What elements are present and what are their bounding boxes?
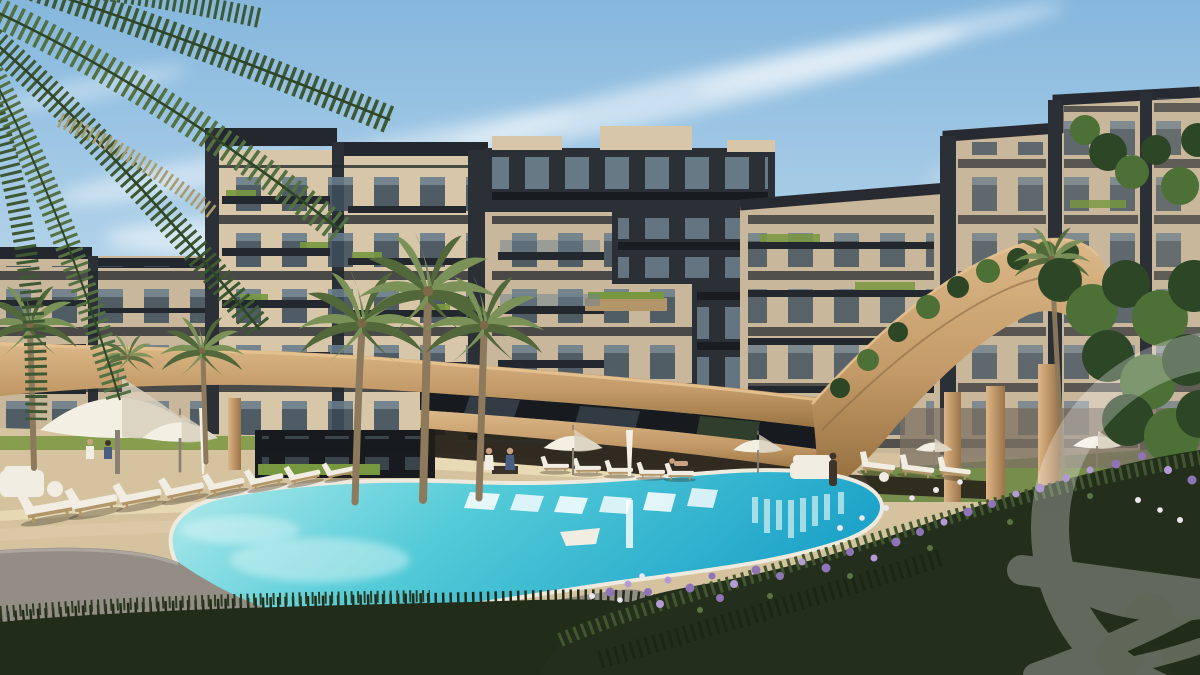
compound-render: [0, 0, 1200, 675]
person-standing: [829, 453, 837, 486]
